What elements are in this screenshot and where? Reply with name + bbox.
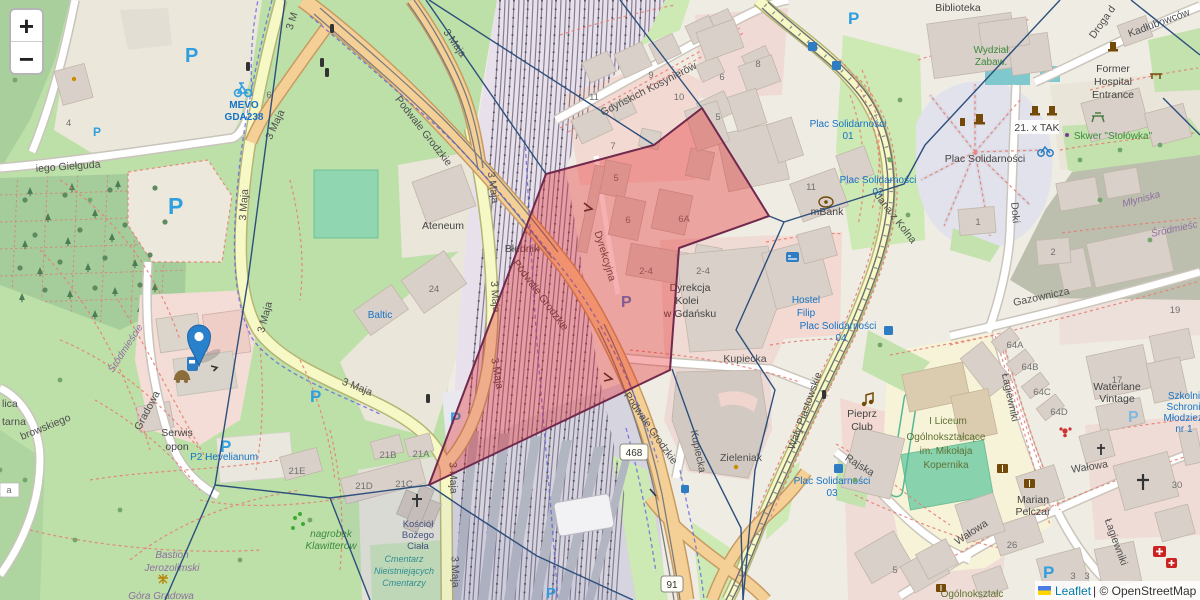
svg-text:Plac Solidarności: Plac Solidarności: [810, 119, 887, 130]
svg-text:P: P: [168, 193, 183, 219]
svg-text:Skwer "Stołówka": Skwer "Stołówka": [1074, 131, 1153, 142]
svg-text:8: 8: [755, 59, 760, 70]
svg-text:Kopernika: Kopernika: [923, 460, 968, 471]
svg-text:Ogólnokształcące: Ogólnokształcące: [907, 432, 986, 443]
svg-text:3 Maja: 3 Maja: [237, 188, 251, 220]
svg-text:lica: lica: [2, 398, 18, 410]
svg-text:2: 2: [1050, 247, 1055, 258]
svg-text:Leaflet: Leaflet: [1055, 584, 1092, 598]
svg-text:30: 30: [1172, 480, 1183, 491]
svg-text:17: 17: [1112, 375, 1123, 386]
svg-text:Pelczar: Pelczar: [1015, 506, 1051, 518]
svg-text:21E: 21E: [289, 466, 306, 477]
svg-text:P: P: [310, 387, 321, 406]
svg-text:21D: 21D: [355, 481, 373, 492]
svg-text:3: 3: [1070, 571, 1075, 582]
svg-text:9: 9: [648, 70, 653, 81]
svg-text:468: 468: [626, 448, 643, 459]
svg-text:21B: 21B: [380, 450, 397, 461]
svg-text:a: a: [6, 485, 12, 496]
svg-text:P: P: [1043, 563, 1054, 582]
svg-text:Marian: Marian: [1017, 494, 1049, 506]
svg-text:4: 4: [66, 118, 71, 129]
svg-text:P: P: [185, 45, 198, 67]
svg-text:Hostel: Hostel: [792, 295, 820, 306]
svg-text:Ogólnokształc: Ogólnokształc: [941, 589, 1004, 600]
svg-text:Baltic: Baltic: [368, 310, 392, 321]
svg-text:Szkolni: Szkolni: [1168, 391, 1200, 402]
svg-text:6: 6: [719, 72, 724, 83]
svg-text:64B: 64B: [1022, 362, 1039, 373]
svg-text:Plac Solidarności: Plac Solidarności: [840, 175, 917, 186]
svg-text:1: 1: [975, 217, 980, 228]
svg-text:| © OpenStreetMap: | © OpenStreetMap: [1093, 584, 1197, 598]
svg-text:Schronis: Schronis: [1167, 402, 1200, 413]
svg-text:19: 19: [1170, 305, 1181, 316]
svg-text:· 04: · 04: [829, 333, 847, 344]
svg-text:Jerozolimski: Jerozolimski: [143, 563, 200, 574]
svg-text:nr 1: nr 1: [1175, 424, 1193, 435]
svg-text:Entrance: Entrance: [1092, 89, 1134, 101]
svg-text:Serwis: Serwis: [161, 427, 193, 439]
svg-text:21A: 21A: [413, 449, 431, 460]
svg-text:7: 7: [610, 141, 615, 152]
svg-text:Doki: Doki: [1008, 202, 1022, 224]
svg-text:Kolei: Kolei: [675, 295, 698, 307]
svg-text:Plac Solidarności: Plac Solidarności: [945, 153, 1026, 165]
svg-text:tarna: tarna: [2, 416, 26, 428]
svg-text:Kupiecka: Kupiecka: [723, 353, 766, 365]
svg-text:Biblioteka: Biblioteka: [935, 2, 981, 14]
svg-text:P: P: [1128, 409, 1139, 426]
svg-text:Hospital: Hospital: [1094, 76, 1132, 88]
svg-text:5: 5: [892, 565, 897, 576]
svg-text:P: P: [848, 9, 859, 28]
svg-text:2-4: 2-4: [696, 266, 710, 277]
svg-text:3: 3: [1084, 571, 1089, 582]
svg-text:24: 24: [429, 284, 440, 295]
svg-text:Pieprz: Pieprz: [847, 408, 877, 420]
svg-text:Ateneum: Ateneum: [422, 220, 464, 232]
svg-text:64A: 64A: [1007, 340, 1025, 351]
svg-text:opon: opon: [165, 441, 189, 453]
svg-text:91: 91: [666, 580, 678, 591]
svg-text:26: 26: [1007, 540, 1018, 551]
svg-text:P: P: [93, 125, 101, 139]
svg-text:MEVO: MEVO: [229, 100, 259, 111]
svg-text:GDA238: GDA238: [225, 112, 264, 123]
svg-text:Plac Solidarności: Plac Solidarności: [794, 476, 871, 487]
svg-text:64D: 64D: [1050, 407, 1068, 418]
svg-text:11: 11: [806, 182, 816, 193]
svg-text:64C: 64C: [1033, 387, 1051, 398]
svg-text:−: −: [19, 44, 34, 74]
svg-text:Plac Solidarności: Plac Solidarności: [800, 321, 877, 332]
svg-text:11: 11: [589, 92, 599, 103]
svg-text:Former: Former: [1096, 63, 1130, 75]
svg-text:5: 5: [715, 112, 720, 123]
svg-text:Góra Gradowa: Góra Gradowa: [128, 591, 194, 600]
svg-text:im. Mikołaja: im. Mikołaja: [920, 446, 973, 457]
svg-text:01: 01: [842, 131, 854, 142]
svg-text:03: 03: [826, 488, 838, 499]
svg-text:Młodzieżo: Młodzieżo: [1163, 413, 1200, 424]
svg-text:I Liceum: I Liceum: [929, 416, 967, 427]
svg-text:Vintage: Vintage: [1099, 393, 1135, 405]
svg-text:6: 6: [266, 90, 271, 101]
svg-text:+: +: [19, 11, 34, 41]
svg-text:Filip: Filip: [797, 308, 816, 319]
svg-text:21. x TAK: 21. x TAK: [1014, 122, 1059, 134]
svg-text:Wydział: Wydział: [974, 45, 1010, 56]
svg-text:10: 10: [674, 92, 685, 103]
svg-text:Club: Club: [851, 421, 873, 433]
